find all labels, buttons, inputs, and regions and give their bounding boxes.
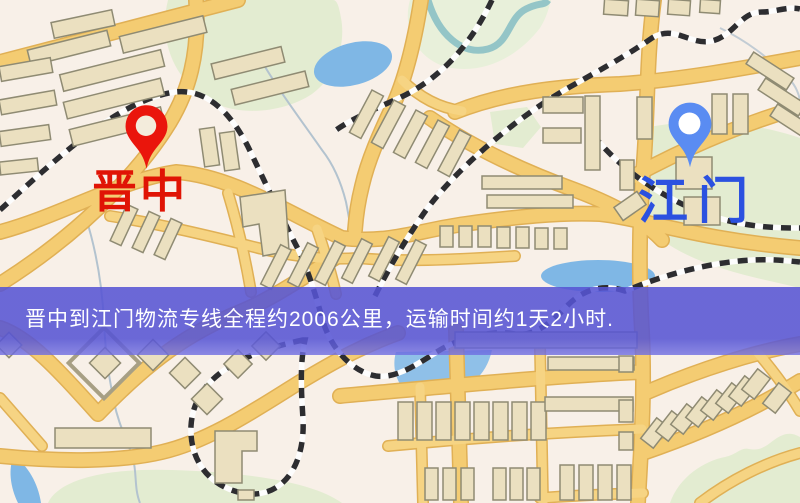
route-banner: 晋中到江门物流专线全程约2006公里，运输时间约1天2小时. <box>0 287 800 355</box>
origin-label: 晋中 <box>92 170 188 215</box>
origin-pin-icon[interactable] <box>123 103 170 173</box>
destination-pin-icon[interactable] <box>666 100 714 172</box>
route-banner-text: 晋中到江门物流专线全程约2006公里，运输时间约1天2小时. <box>25 303 614 333</box>
destination-label: 江门 <box>638 176 758 226</box>
map-view[interactable]: 晋中 江门 晋中到江门物流专线全程约2006公里，运输时间约1天2小时. <box>0 0 800 503</box>
map-canvas[interactable] <box>0 0 800 503</box>
